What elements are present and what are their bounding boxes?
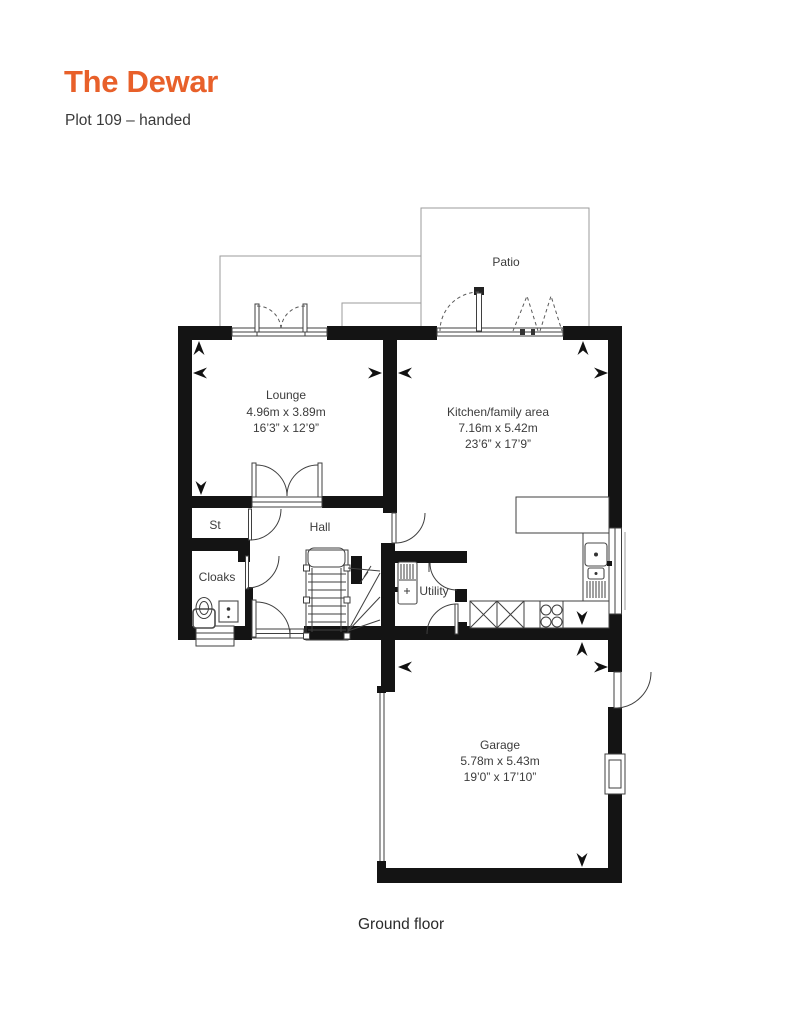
garage-dims-imperial: 19’0” x 17’10” xyxy=(464,770,537,784)
washing-machine-symbol xyxy=(393,562,418,604)
patio-door-leaf xyxy=(477,293,482,331)
st-label: St xyxy=(209,518,221,532)
garage-side-door-leaf xyxy=(614,672,621,708)
toilet-symbol xyxy=(193,598,215,629)
lounge-label: Lounge xyxy=(266,388,306,402)
french-door-leaf xyxy=(255,304,259,332)
floorplan: Patio Lounge 4.96m x 3.89m 16’3” x 12’9”… xyxy=(0,0,800,1036)
garage-dims-metric: 5.78m x 5.43m xyxy=(460,754,539,768)
patio-label: Patio xyxy=(492,255,520,269)
lounge-dims-metric: 4.96m x 3.89m xyxy=(246,405,325,419)
garage-door xyxy=(377,686,386,869)
kitchen-label: Kitchen/family area xyxy=(447,405,549,419)
bifold-door xyxy=(513,296,538,331)
door-track-tick xyxy=(531,329,535,335)
kitchen-door-leaf xyxy=(392,513,396,543)
front-door-leaf xyxy=(252,600,256,637)
st-door-leaf xyxy=(249,509,252,540)
french-door-leaf xyxy=(303,304,307,332)
utility-door-leaf xyxy=(455,604,458,634)
paving-outlines xyxy=(220,208,589,330)
paving-edge-upper xyxy=(220,256,421,330)
paving-edge-step xyxy=(342,303,421,330)
cloaks-label: Cloaks xyxy=(199,570,236,584)
bifold-door xyxy=(540,296,562,331)
cloaks-window xyxy=(196,626,234,646)
garage-label: Garage xyxy=(480,738,520,752)
patio-outline xyxy=(421,208,589,330)
lounge-double-door-leaf xyxy=(252,463,256,497)
kitchen-dims-metric: 7.16m x 5.42m xyxy=(458,421,537,435)
lounge-dims-imperial: 16’3” x 12’9” xyxy=(253,421,319,435)
lounge-double-door-leaf xyxy=(318,463,322,497)
kitchen-dims-imperial: 23’6” x 17’9” xyxy=(465,437,531,451)
basin-symbol xyxy=(219,601,238,622)
hall-label: Hall xyxy=(310,520,331,534)
cloaks-door-leaf xyxy=(246,556,249,589)
utility-label: Utility xyxy=(419,584,448,598)
door-track-tick xyxy=(520,329,525,335)
